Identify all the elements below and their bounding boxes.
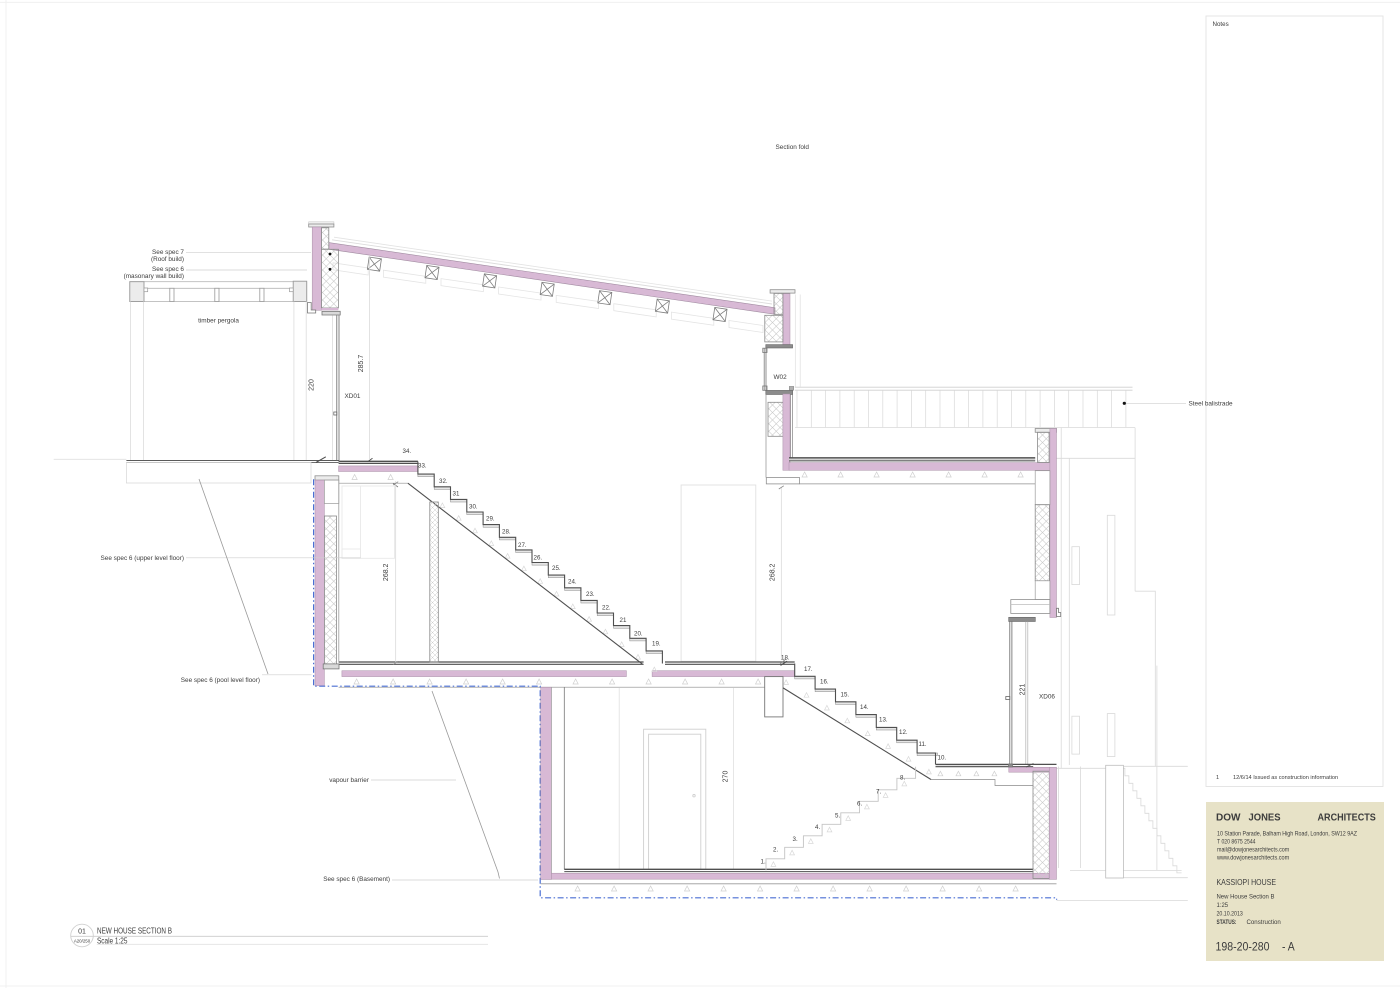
- svg-text:20.10.2013: 20.10.2013: [1217, 911, 1244, 918]
- svg-text:25.: 25.: [552, 565, 561, 572]
- svg-text:W02: W02: [774, 374, 788, 381]
- svg-text:31: 31: [453, 491, 460, 498]
- svg-text:See spec 6 (Basement): See spec 6 (Basement): [323, 876, 390, 883]
- svg-text:15.: 15.: [841, 691, 850, 698]
- svg-text:Notes: Notes: [1213, 21, 1229, 28]
- svg-text:1: 1: [1216, 775, 1219, 781]
- svg-text:19.: 19.: [652, 641, 661, 648]
- svg-text:(masonary wall build): (masonary wall build): [124, 273, 184, 280]
- svg-text:34.: 34.: [403, 448, 412, 455]
- svg-text:11.: 11.: [919, 741, 927, 748]
- svg-text:ARCHITECTS: ARCHITECTS: [1318, 813, 1377, 824]
- svg-text:14.: 14.: [860, 704, 869, 711]
- svg-text:29.: 29.: [486, 516, 495, 523]
- svg-text:XD06: XD06: [1039, 693, 1055, 700]
- svg-text:Steel balistrade: Steel balistrade: [1189, 401, 1233, 408]
- svg-text:DOW: DOW: [1216, 813, 1241, 824]
- svg-text:24.: 24.: [568, 579, 577, 586]
- svg-text:(Roof build): (Roof build): [151, 256, 184, 263]
- svg-text:28.: 28.: [502, 529, 511, 536]
- svg-text:26.: 26.: [534, 555, 543, 562]
- svg-text:A20/250: A20/250: [74, 939, 91, 944]
- svg-text:New House Section B: New House Section B: [1217, 894, 1276, 901]
- svg-text:NEW HOUSE SECTION B: NEW HOUSE SECTION B: [97, 926, 172, 935]
- svg-text:33.: 33.: [418, 463, 427, 470]
- svg-text:3.: 3.: [793, 836, 798, 843]
- svg-text:220: 220: [309, 379, 316, 391]
- svg-text:timber pergola: timber pergola: [198, 318, 239, 325]
- svg-text:See spec 7: See spec 7: [152, 249, 184, 256]
- svg-text:XD01: XD01: [345, 393, 361, 400]
- svg-text:5.: 5.: [835, 813, 840, 820]
- svg-text:18.: 18.: [781, 655, 790, 662]
- svg-text:2.: 2.: [773, 847, 778, 854]
- svg-text:21: 21: [620, 617, 627, 624]
- svg-text:vapour barrier: vapour barrier: [329, 777, 370, 784]
- svg-text:7.: 7.: [876, 789, 881, 796]
- svg-text:30.: 30.: [469, 504, 478, 511]
- svg-text:Scale 1:25: Scale 1:25: [97, 936, 128, 945]
- svg-text:See spec 6: See spec 6: [152, 266, 184, 273]
- svg-text:KASSIOPI HOUSE: KASSIOPI HOUSE: [1217, 877, 1277, 887]
- svg-text:12.: 12.: [899, 729, 908, 736]
- svg-text:32.: 32.: [439, 478, 448, 485]
- svg-text:17.: 17.: [804, 666, 813, 673]
- svg-text:20.: 20.: [634, 631, 643, 638]
- svg-text:13.: 13.: [879, 717, 888, 724]
- svg-text:6.: 6.: [857, 801, 862, 808]
- svg-text:285.7: 285.7: [358, 355, 365, 373]
- svg-text:1.: 1.: [761, 859, 766, 866]
- svg-text:01: 01: [78, 929, 86, 936]
- svg-text:10 Station Parade, Balham High: 10 Station Parade, Balham High Road, Lon…: [1217, 831, 1357, 838]
- svg-text:- A: - A: [1282, 940, 1295, 954]
- svg-text:See spec 6 (upper level floor): See spec 6 (upper level floor): [101, 555, 184, 562]
- svg-text:10.: 10.: [938, 755, 947, 762]
- svg-text:12/6/14 Issued as constructio: 12/6/14 Issued as construction informati…: [1233, 775, 1338, 781]
- svg-text:270: 270: [723, 771, 730, 783]
- svg-text:See spec 6 (pool level floor): See spec 6 (pool level floor): [181, 677, 260, 684]
- svg-text:JONES: JONES: [1249, 813, 1281, 824]
- svg-text:221: 221: [1020, 684, 1027, 696]
- svg-text:27.: 27.: [518, 542, 527, 549]
- svg-text:23.: 23.: [586, 591, 595, 598]
- svg-text:STATUS:: STATUS:: [1217, 919, 1237, 926]
- svg-text:1:25: 1:25: [1217, 902, 1229, 909]
- svg-text:8.: 8.: [900, 775, 905, 782]
- svg-text:mail@dowjonesarchitects.com: mail@dowjonesarchitects.com: [1217, 847, 1289, 854]
- svg-text:T 020 8675 2544: T 020 8675 2544: [1217, 839, 1256, 846]
- svg-text:198-20-280: 198-20-280: [1216, 940, 1270, 954]
- svg-text:268.2: 268.2: [383, 563, 390, 581]
- svg-text:Section fold: Section fold: [776, 144, 810, 151]
- svg-text:16.: 16.: [820, 679, 829, 686]
- svg-text:Construction: Construction: [1247, 919, 1282, 926]
- svg-text:22.: 22.: [602, 605, 611, 612]
- svg-text:4.: 4.: [815, 824, 820, 831]
- svg-text:www.dowjonesarchitects.com: www.dowjonesarchitects.com: [1216, 854, 1289, 861]
- svg-text:268.2: 268.2: [770, 563, 777, 581]
